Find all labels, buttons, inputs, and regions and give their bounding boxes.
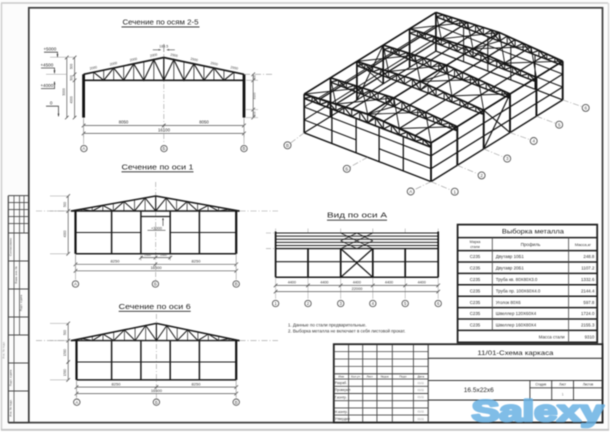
svg-text:№док: №док bbox=[381, 375, 390, 379]
svg-text:стали: стали bbox=[470, 245, 480, 249]
svg-text:А: А bbox=[75, 400, 78, 405]
svg-text:500: 500 bbox=[252, 74, 256, 79]
svg-text:Дата: Дата bbox=[417, 375, 424, 379]
svg-text:Н.контр.: Н.контр. bbox=[335, 410, 348, 414]
svg-text:4400: 4400 bbox=[320, 281, 328, 285]
svg-text:01/11: 01/11 bbox=[418, 410, 425, 414]
svg-text:+4500: +4500 bbox=[40, 62, 53, 67]
svg-text:Стадия: Стадия bbox=[535, 383, 546, 387]
svg-text:+4000: +4000 bbox=[40, 83, 53, 88]
svg-text:С235: С235 bbox=[470, 266, 481, 271]
svg-text:1500: 1500 bbox=[160, 253, 167, 257]
svg-text:В: В bbox=[235, 400, 238, 405]
svg-text:248.8: 248.8 bbox=[583, 254, 595, 259]
svg-text:Лист: Лист bbox=[559, 383, 566, 387]
svg-text:1107.2: 1107.2 bbox=[581, 266, 595, 271]
svg-text:Профиль: Профиль bbox=[521, 242, 541, 247]
svg-text:Б: Б bbox=[345, 166, 348, 171]
svg-text:01/11: 01/11 bbox=[418, 395, 425, 399]
svg-text:Б: Б bbox=[155, 400, 158, 405]
svg-text:Выборка металла: Выборка металла bbox=[502, 229, 565, 236]
svg-text:Сечение по осям 2-5: Сечение по осям 2-5 bbox=[123, 18, 199, 27]
svg-text:Швеллер 160Х80Х4: Швеллер 160Х80Х4 bbox=[496, 323, 537, 328]
svg-text:4400: 4400 bbox=[353, 281, 361, 285]
svg-text:2155.3: 2155.3 bbox=[581, 323, 595, 328]
svg-text:Инв. № подл.: Инв. № подл. bbox=[2, 341, 6, 359]
svg-text:А: А bbox=[409, 189, 412, 194]
svg-text:С235: С235 bbox=[470, 254, 481, 259]
svg-text:8250: 8250 bbox=[192, 381, 202, 386]
svg-text:2. Выборка металла не включает: 2. Выборка металла не включает в себя ли… bbox=[288, 328, 405, 333]
svg-text:Двутавр 10Б1: Двутавр 10Б1 bbox=[496, 254, 525, 259]
svg-text:Б: Б bbox=[154, 282, 157, 287]
svg-text:Швеллер 120Х60Х4: Швеллер 120Х60Х4 bbox=[496, 311, 537, 316]
svg-text:Г.контр.: Г.контр. bbox=[335, 395, 347, 399]
svg-text:22000: 22000 bbox=[352, 286, 364, 291]
svg-text:1332.6: 1332.6 bbox=[581, 277, 595, 282]
svg-text:11/01-Схема каркаса: 11/01-Схема каркаса bbox=[477, 350, 554, 357]
svg-text:4400: 4400 bbox=[288, 281, 296, 285]
svg-text:С235: С235 bbox=[470, 311, 481, 316]
svg-text:Вид по оси А: Вид по оси А bbox=[327, 211, 387, 220]
svg-text:+3000: +3000 bbox=[151, 225, 163, 230]
svg-text:8250: 8250 bbox=[192, 259, 202, 264]
svg-text:Согласовано: Согласовано bbox=[9, 238, 13, 256]
svg-text:8050: 8050 bbox=[119, 120, 129, 125]
svg-text:01/11: 01/11 bbox=[418, 388, 425, 392]
svg-text:3100: 3100 bbox=[252, 92, 256, 99]
svg-text:Изм: Изм bbox=[338, 375, 344, 379]
svg-text:Подп: Подп bbox=[399, 375, 407, 379]
svg-text:500: 500 bbox=[63, 330, 67, 336]
svg-text:Двутавр 20Б1: Двутавр 20Б1 bbox=[496, 266, 525, 271]
svg-text:01/11: 01/11 bbox=[418, 381, 425, 385]
svg-text:А: А bbox=[74, 282, 77, 287]
svg-text:8250: 8250 bbox=[112, 381, 122, 386]
svg-text:Марка: Марка bbox=[470, 240, 481, 244]
svg-text:16100: 16100 bbox=[158, 128, 171, 133]
svg-text:16500: 16500 bbox=[150, 265, 162, 270]
svg-text:8250: 8250 bbox=[111, 259, 121, 264]
svg-text:0: 0 bbox=[50, 101, 53, 106]
svg-text:Масса,кг: Масса,кг bbox=[575, 242, 592, 247]
svg-text:А: А bbox=[82, 146, 85, 151]
svg-text:Б: Б bbox=[163, 146, 166, 151]
svg-text:01/11: 01/11 bbox=[418, 417, 425, 421]
svg-text:Листов: Листов bbox=[583, 383, 594, 387]
svg-text:Подп. и дата: Подп. и дата bbox=[19, 294, 23, 311]
svg-text:Труба пр. 100Х60Х4.0: Труба пр. 100Х60Х4.0 bbox=[496, 288, 541, 293]
svg-text:1500: 1500 bbox=[63, 369, 67, 376]
svg-text:1. Данные по стали предварител: 1. Данные по стали предварительные. bbox=[288, 322, 367, 327]
svg-text:189.5: 189.5 bbox=[159, 45, 168, 49]
svg-text:1500: 1500 bbox=[144, 253, 151, 257]
svg-text:8050: 8050 bbox=[199, 120, 209, 125]
svg-text:2144.4: 2144.4 bbox=[581, 288, 595, 293]
svg-text:Кол.уч: Кол.уч bbox=[351, 375, 360, 379]
svg-text:16.5х22х6: 16.5х22х6 bbox=[464, 387, 495, 394]
svg-text:500: 500 bbox=[63, 202, 67, 208]
svg-text:С235: С235 bbox=[470, 277, 481, 282]
svg-text:С235: С235 bbox=[470, 288, 481, 293]
svg-text:1500: 1500 bbox=[63, 349, 67, 356]
svg-text:Сечение по оси 1: Сечение по оси 1 bbox=[122, 162, 194, 171]
svg-text:Уголок 80Х6: Уголок 80Х6 bbox=[496, 300, 521, 305]
svg-text:4000: 4000 bbox=[70, 96, 74, 104]
svg-text:В: В bbox=[286, 143, 289, 148]
svg-text:597.8: 597.8 bbox=[583, 300, 595, 305]
svg-text:4400: 4400 bbox=[385, 281, 393, 285]
svg-text:Подп. и дата: Подп. и дата bbox=[9, 369, 13, 386]
svg-text:Salexy: Salexy bbox=[472, 395, 604, 428]
svg-text:В: В bbox=[243, 146, 246, 151]
svg-text:С235: С235 bbox=[470, 323, 481, 328]
svg-text:Взам. инв. №: Взам. инв. № bbox=[14, 266, 18, 283]
svg-text:Проверил: Проверил bbox=[335, 388, 351, 392]
svg-text:4000: 4000 bbox=[63, 230, 67, 237]
svg-text:16500: 16500 bbox=[151, 388, 163, 393]
svg-text:1724.0: 1724.0 bbox=[581, 311, 595, 316]
svg-text:В: В bbox=[235, 282, 238, 287]
svg-text:Лист: Лист bbox=[367, 375, 374, 379]
svg-text:500: 500 bbox=[70, 75, 74, 81]
svg-text:Инв. № подл.: Инв. № подл. bbox=[9, 399, 13, 417]
svg-text:С235: С235 bbox=[470, 300, 481, 305]
svg-text:5000: 5000 bbox=[62, 88, 66, 96]
svg-text:Разраб.: Разраб. bbox=[335, 381, 347, 385]
svg-text:9310: 9310 bbox=[585, 334, 595, 339]
svg-text:500: 500 bbox=[70, 64, 74, 70]
svg-text:4400: 4400 bbox=[418, 281, 426, 285]
svg-text:+5000: +5000 bbox=[43, 47, 56, 52]
svg-text:Масса стали: Масса стали bbox=[539, 334, 565, 339]
svg-text:900: 900 bbox=[252, 111, 256, 116]
svg-text:Сечение по оси 6: Сечение по оси 6 bbox=[119, 302, 191, 311]
svg-text:Труба кв. 80Х80Х3.0: Труба кв. 80Х80Х3.0 bbox=[496, 277, 538, 282]
svg-text:Утвердил: Утвердил bbox=[335, 417, 350, 421]
